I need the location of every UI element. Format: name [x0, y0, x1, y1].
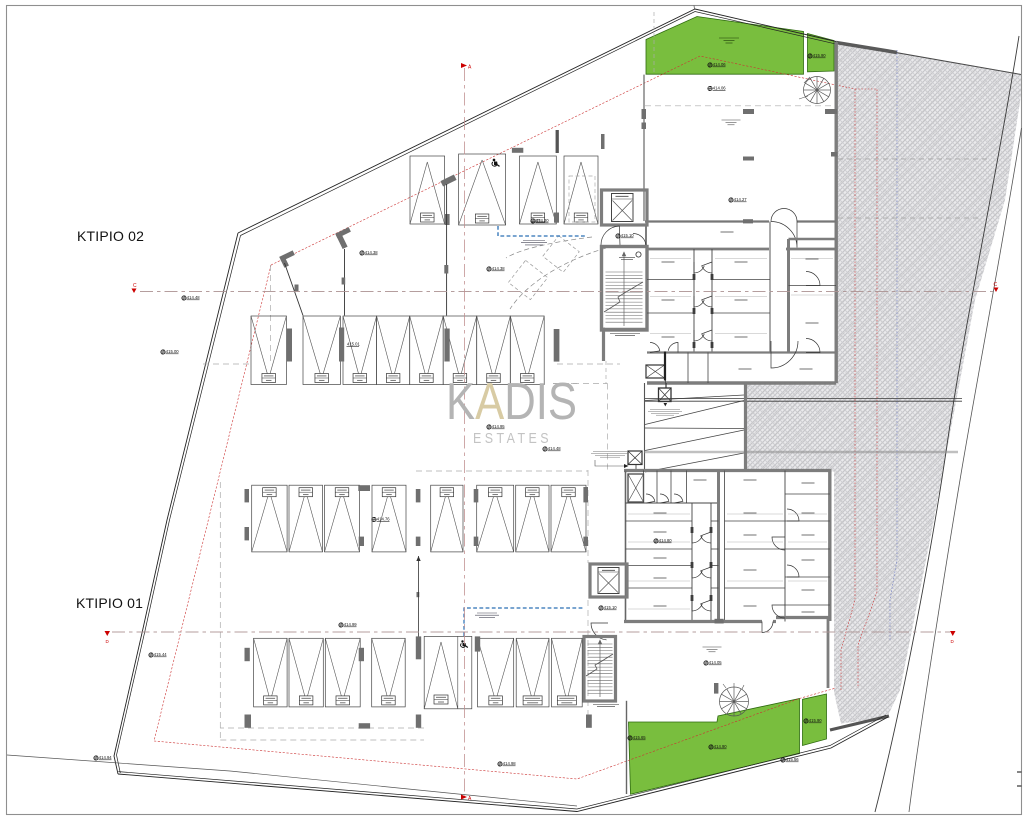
svg-text:414.76: 414.76: [377, 516, 390, 521]
svg-text:414.06: 414.06: [713, 85, 726, 90]
svg-text:415.56: 415.56: [786, 757, 799, 762]
svg-text:415.00: 415.00: [166, 349, 179, 354]
svg-text:415.01: 415.01: [347, 342, 360, 347]
svg-text:414.90: 414.90: [714, 744, 727, 749]
svg-text:415.10: 415.10: [621, 233, 634, 238]
svg-text:C: C: [133, 283, 137, 289]
svg-text:415.10: 415.10: [604, 605, 617, 610]
svg-text:414.30: 414.30: [536, 218, 549, 223]
svg-text:ESTATES: ESTATES: [473, 431, 552, 447]
svg-text:415.65: 415.65: [633, 735, 646, 740]
svg-text:KADIS: KADIS: [446, 373, 577, 431]
svg-text:414.38: 414.38: [492, 266, 505, 271]
svg-text:414.94: 414.94: [99, 755, 112, 760]
svg-text:414.99: 414.99: [344, 622, 357, 627]
svg-text:414.48: 414.48: [548, 446, 561, 451]
svg-text:414.05: 414.05: [709, 660, 722, 665]
svg-text:414.80: 414.80: [659, 538, 672, 543]
svg-text:KTIPIO 01: KTIPIO 01: [76, 595, 143, 611]
svg-text:414.38: 414.38: [365, 250, 378, 255]
svg-text:414.06: 414.06: [713, 62, 726, 67]
svg-text:KTIPIO 02: KTIPIO 02: [77, 228, 144, 244]
svg-text:414.98: 414.98: [503, 761, 516, 766]
svg-text:415.44: 415.44: [154, 652, 167, 657]
svg-text:415.90: 415.90: [813, 53, 826, 58]
svg-text:414.27: 414.27: [734, 197, 747, 202]
svg-text:415.90: 415.90: [809, 718, 822, 723]
svg-text:414.95: 414.95: [492, 424, 505, 429]
svg-text:414.48: 414.48: [187, 295, 200, 300]
svg-text:C: C: [994, 282, 998, 288]
